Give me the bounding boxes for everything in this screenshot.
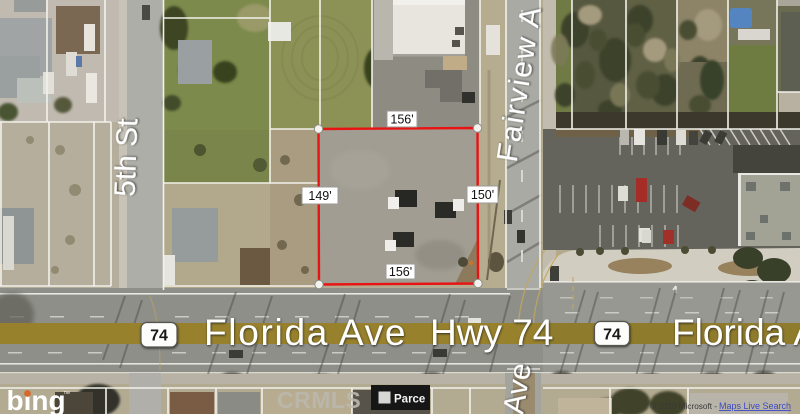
svg-text:Hwy 74: Hwy 74: [430, 312, 553, 353]
svg-text:5th St: 5th St: [109, 117, 145, 197]
svg-text:Florida Ave: Florida Ave: [204, 312, 407, 353]
svg-text:149': 149': [308, 189, 331, 203]
svg-text:Parce: Parce: [394, 394, 425, 406]
svg-text:156': 156': [390, 113, 413, 127]
svg-text:bıng: bıng: [7, 385, 66, 414]
svg-text:150': 150': [471, 188, 494, 202]
svg-text:74: 74: [150, 328, 168, 345]
svg-text:™: ™: [63, 391, 70, 398]
svg-text:Maps Live Search: Maps Live Search: [719, 401, 791, 411]
svg-text:CRMLS: CRMLS: [277, 387, 361, 413]
svg-text:Florida A: Florida A: [672, 312, 800, 353]
svg-text:156': 156': [389, 265, 412, 279]
svg-text:© 2010 Microsoft -: © 2010 Microsoft -: [650, 402, 717, 411]
svg-text:74: 74: [603, 327, 621, 344]
